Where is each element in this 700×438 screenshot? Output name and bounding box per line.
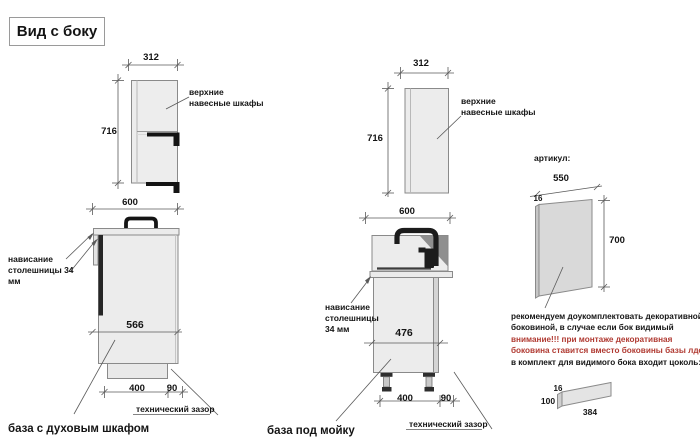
dim-middle-upper-height: 716 (367, 133, 383, 144)
dim-left-upper-height: 716 (101, 126, 117, 137)
middle-upper-cabinet (405, 89, 449, 194)
note-line-5: в комплект для видимого бока входит цоко… (511, 357, 700, 368)
faucet-lever (419, 248, 426, 253)
label-upper-cabinets-left: верхние навесные шкафы (189, 87, 267, 109)
label-overhang-middle: нависание столешницы 34 мм (325, 302, 372, 335)
label-article: артикул: (534, 153, 570, 163)
dim-left-tech-gap: 90 (167, 383, 178, 394)
label-tech-gap-left: технический зазор (136, 404, 215, 414)
dim-left-base-width: 600 (122, 197, 138, 208)
dim-middle-upper-width: 312 (413, 58, 429, 69)
leg-icon (381, 373, 393, 392)
drawing-title: Вид с боку (9, 17, 105, 46)
label-upper-cabinets-middle: верхние навесные шкафы (461, 96, 539, 118)
note-line-3-warning: внимание!!! при монтаже декоративная (511, 334, 700, 345)
caption-sink-unit: база под мойку (267, 425, 355, 437)
label-tech-gap-middle: технический зазор (409, 419, 488, 429)
note-line-1: рекомендуем доукомплектовать декоративно… (511, 311, 700, 322)
dim-panel-width: 550 (553, 173, 569, 184)
note-block: рекомендуем доукомплектовать декоративно… (511, 311, 700, 368)
left-upper-cabinet (132, 81, 180, 194)
plinth-board (558, 383, 612, 409)
label-overhang-left: нависание столешницы 34 мм (8, 254, 82, 287)
dim-middle-base-width: 600 (399, 206, 415, 217)
cabinet-body (374, 278, 439, 373)
countertop (370, 272, 453, 278)
note-line-2: боковиной, в случае если бок видимый (511, 322, 700, 333)
dim-panel-height: 700 (609, 235, 625, 246)
drawing-title-text: Вид с боку (17, 23, 98, 40)
decor-side-panel (536, 200, 593, 299)
dim-left-upper-width: 312 (143, 52, 159, 63)
leg-icon (423, 373, 435, 392)
dim-middle-tech-gap: 90 (441, 393, 452, 404)
dim-middle-plinth-width: 400 (397, 393, 413, 404)
middle-base-cabinet (370, 231, 453, 392)
faucet-body (425, 249, 435, 269)
drawing-canvas (0, 0, 700, 438)
drawing-page: Вид с боку 312 716 верхние навесные шкаф… (0, 0, 700, 438)
dim-panel-thickness: 16 (534, 194, 543, 203)
cabinet-body (99, 235, 179, 364)
dim-plinth-length: 384 (583, 407, 597, 417)
caption-oven-unit: база с духовым шкафом (8, 423, 149, 435)
note-line-4-warning: боковина ставится вместо боковины базы л… (511, 345, 700, 356)
oven-door-edge (99, 235, 104, 316)
dim-plinth-thickness: 16 (554, 384, 563, 393)
dim-left-interior-width: 566 (126, 319, 144, 331)
bottom-bracket-icon (146, 182, 180, 193)
side-panel-edge (434, 278, 439, 373)
dim-left-plinth-width: 400 (129, 383, 145, 394)
plinth (108, 364, 168, 379)
dim-middle-interior-width: 476 (395, 327, 413, 339)
left-base-cabinet (94, 219, 180, 379)
countertop (94, 229, 180, 236)
oven-handle-icon (126, 219, 156, 229)
dim-plinth-height: 100 (541, 396, 555, 406)
